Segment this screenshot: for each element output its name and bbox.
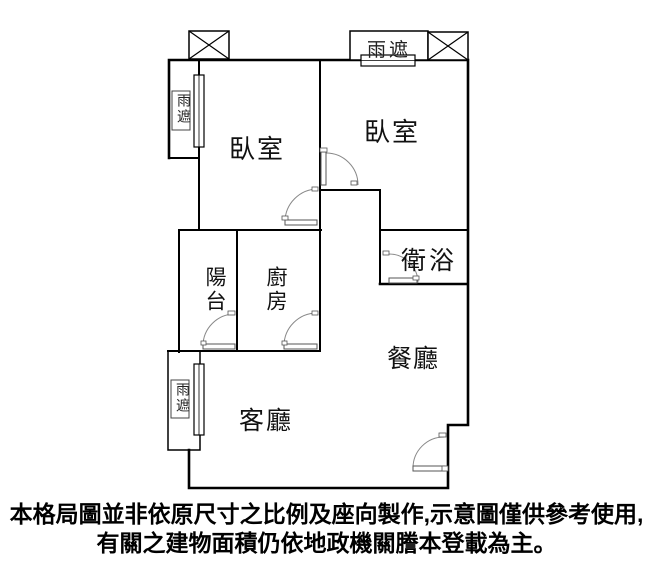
room-label-bedroom-left: 臥室 — [204, 129, 310, 166]
door-kitchen — [282, 311, 318, 349]
canopy-label-frames — [171, 91, 190, 418]
disclaimer-line-1: 本格局圖並非依原尺寸之比例及座向製作,示意圖僅供參考使用, — [0, 500, 653, 529]
door-balcony — [201, 311, 235, 349]
floorplan-page: 臥室 臥室 衛浴 餐廳 客廳 陽台 廚房 雨遮 雨遮 雨遮 本格局圖並非依原尺寸… — [0, 0, 653, 570]
room-label-living: 客廳 — [213, 401, 319, 437]
door-bedroom-right — [320, 148, 358, 185]
room-label-balcony: 陽台 — [199, 266, 229, 314]
door-entry — [413, 433, 448, 471]
door-bedroom-left — [282, 187, 318, 225]
room-label-bedroom-right: 臥室 — [339, 112, 445, 149]
window-bedroom-left — [194, 75, 204, 147]
canopy-label-lower-left: 雨遮 — [173, 382, 193, 414]
floorplan-drawing — [0, 0, 653, 498]
disclaimer-text: 本格局圖並非依原尺寸之比例及座向製作,示意圖僅供參考使用, 有關之建物面積仍依地… — [0, 500, 653, 558]
room-label-dining: 餐廳 — [360, 339, 466, 375]
disclaimer-line-2: 有關之建物面積仍依地政機關謄本登載為主。 — [0, 529, 653, 558]
room-label-kitchen: 廚房 — [260, 266, 290, 314]
crossed-box-left-icon — [189, 31, 229, 59]
window-living-room — [194, 364, 204, 435]
room-label-bathroom: 衛浴 — [376, 241, 482, 277]
canopy-label-upper-left: 雨遮 — [174, 93, 194, 125]
crossed-box-right-icon — [428, 32, 468, 60]
canopy-label-top: 雨遮 — [350, 35, 428, 62]
